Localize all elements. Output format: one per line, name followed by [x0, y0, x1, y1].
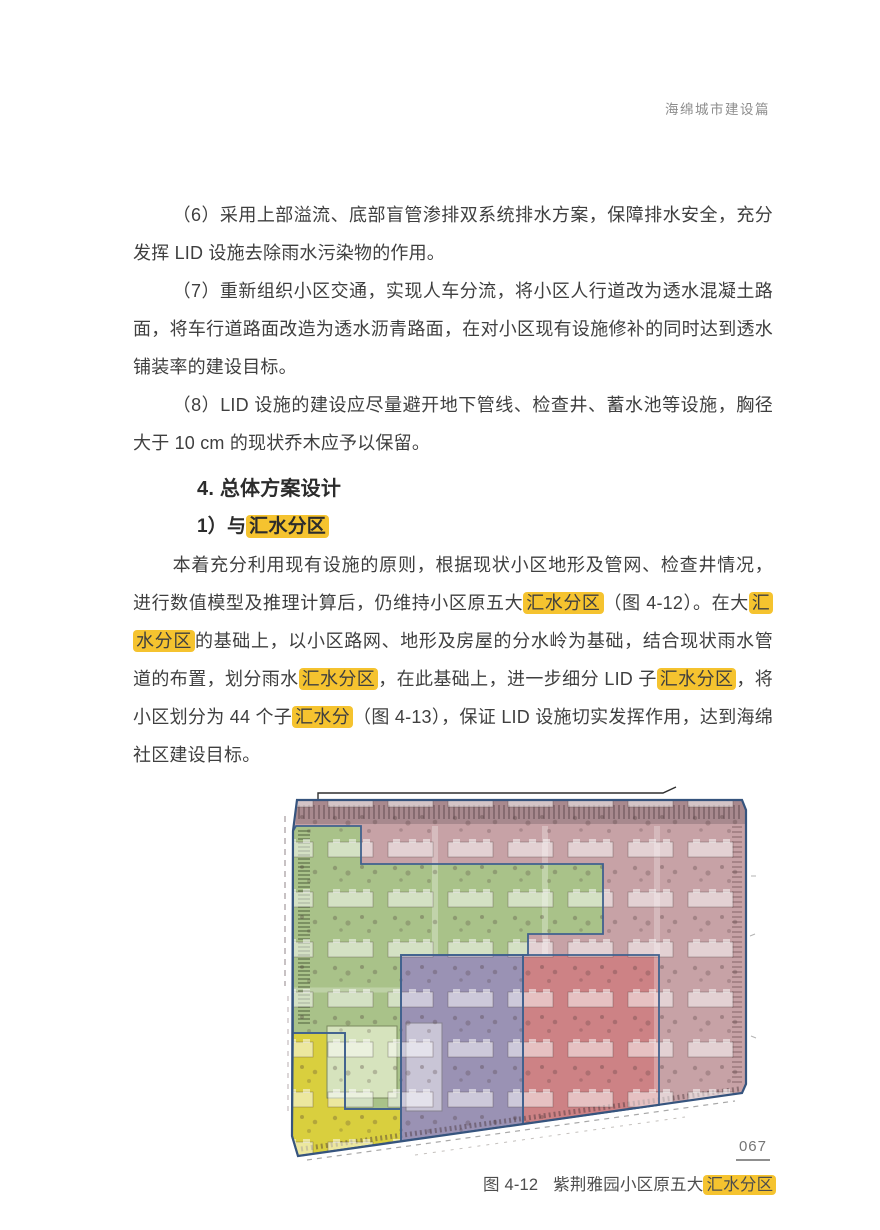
sub-heading: 1）与汇水分区	[197, 508, 773, 546]
site-plan-map	[265, 786, 757, 1164]
book-page: { "page": { "header_title": "海绵城市建设篇", "…	[0, 0, 880, 1230]
paragraph-6: （6）采用上部溢流、底部盲管渗排双系统排水方案，保障排水安全，充分发挥 LID …	[133, 196, 773, 272]
highlighted-text: 汇水分区	[299, 668, 379, 690]
sketch-right-mark-3	[751, 1036, 756, 1038]
highlighted-text: 汇水分区	[246, 515, 329, 538]
paragraph-8: （8）LID 设施的建设应尽量避开地下管线、检查井、蓄水池等设施，胸径大于 10…	[133, 386, 773, 462]
figure-4-12	[265, 786, 757, 1164]
text-run: （图 4-12）。在大	[604, 593, 749, 613]
sketch-right-mark-2	[750, 934, 755, 936]
main-paragraph: 本着充分利用现有设施的原则，根据现状小区地形及管网、检查井情况，进行数值模型及推…	[133, 546, 773, 774]
figure-caption-text: 紫荆雅园小区原五大	[553, 1176, 703, 1194]
page-header-title: 海绵城市建设篇	[665, 98, 770, 118]
text-run: 1）与	[197, 516, 246, 537]
figure-caption: 图 4-12紫荆雅园小区原五大汇水分区	[483, 1172, 773, 1198]
page-number: 067	[736, 1138, 770, 1161]
paragraph-7: （7）重新组织小区交通，实现人车分流，将小区人行道改为透水混凝土路面，将车行道路…	[133, 272, 773, 386]
highlighted-text: 汇水分区	[657, 668, 737, 690]
figure-caption-label: 图 4-12	[483, 1176, 538, 1194]
figure-caption-highlight: 汇水分区	[703, 1175, 776, 1195]
highlighted-text: 汇水分区	[523, 592, 603, 614]
highlighted-text: 汇水分	[292, 706, 353, 728]
text-run: ，在此基础上，进一步细分 LID 子	[378, 669, 657, 689]
page-content: （6）采用上部溢流、底部盲管渗排双系统排水方案，保障排水安全，充分发挥 LID …	[133, 196, 773, 1198]
section-heading: 4. 总体方案设计	[197, 470, 773, 508]
